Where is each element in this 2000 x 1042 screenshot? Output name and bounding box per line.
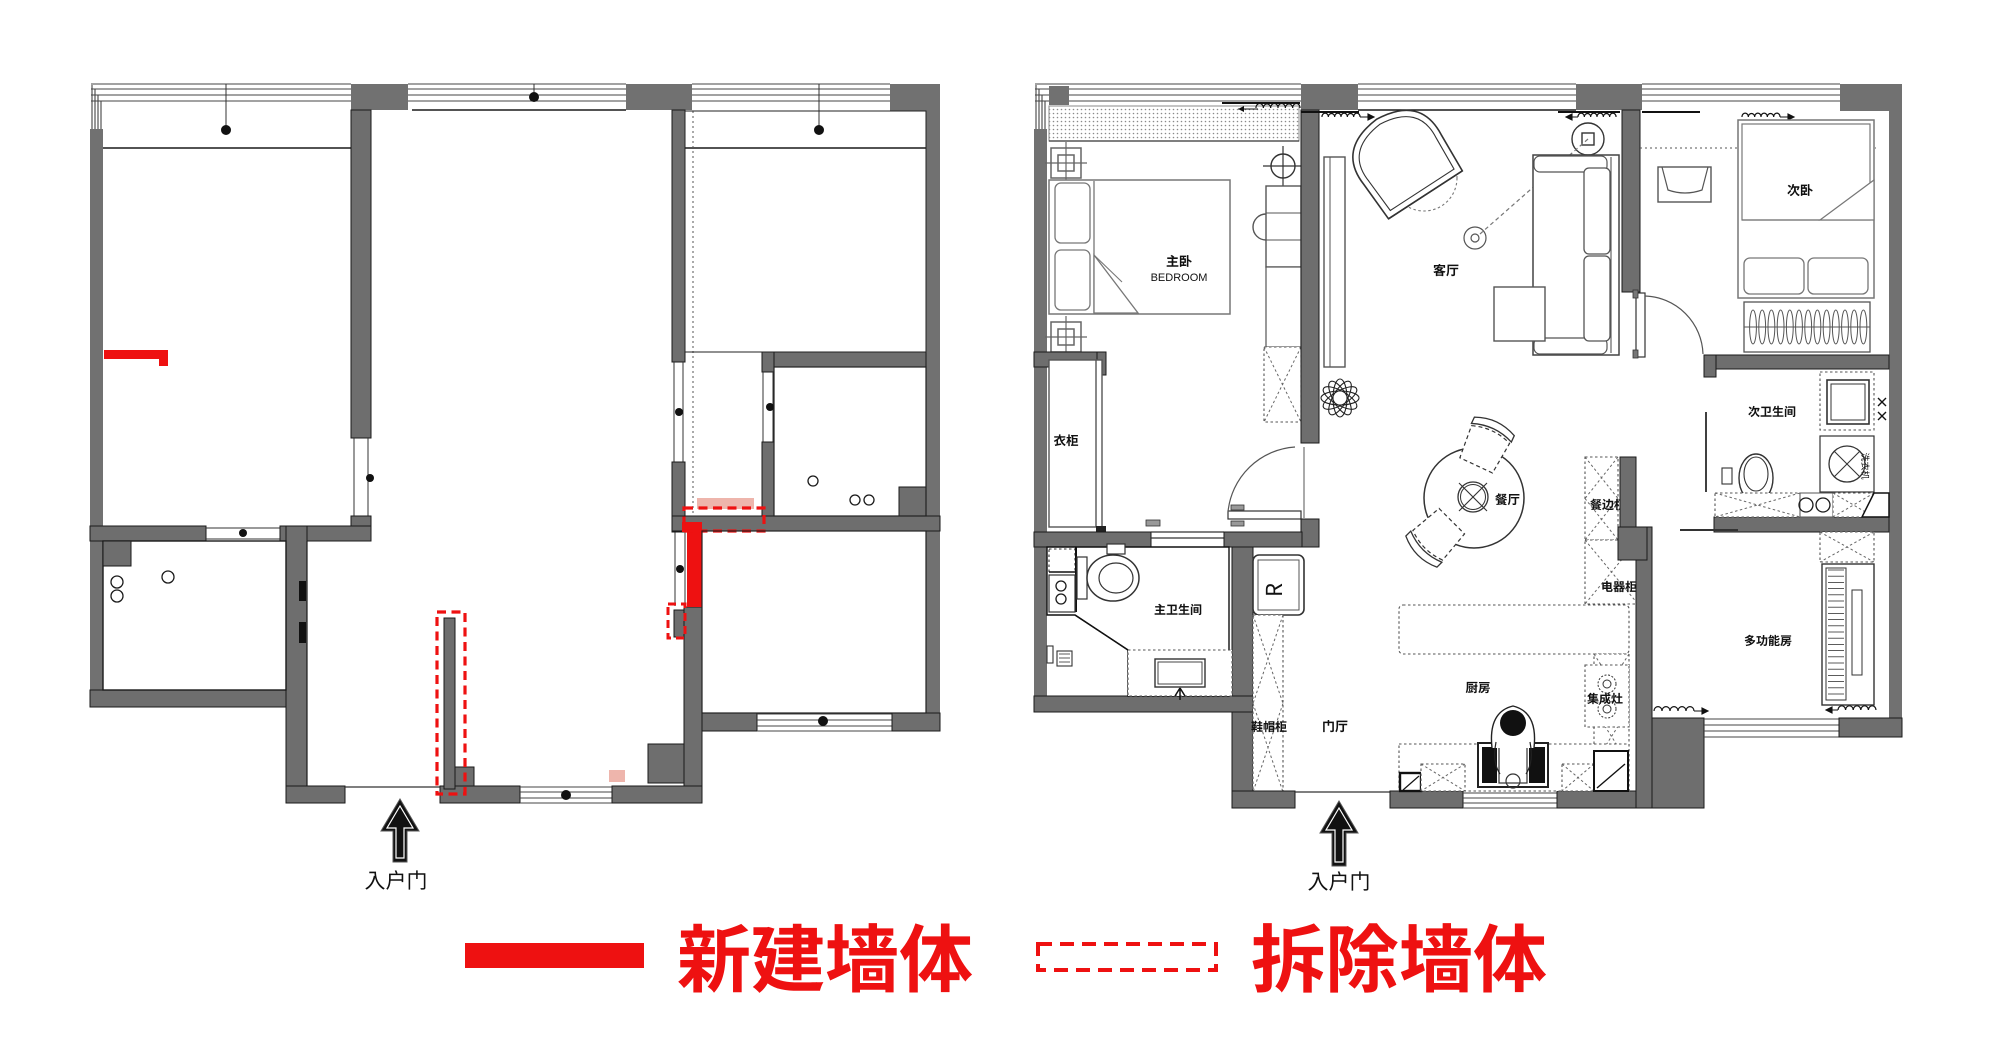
svg-text:BEDROOM: BEDROOM bbox=[1151, 272, 1208, 284]
